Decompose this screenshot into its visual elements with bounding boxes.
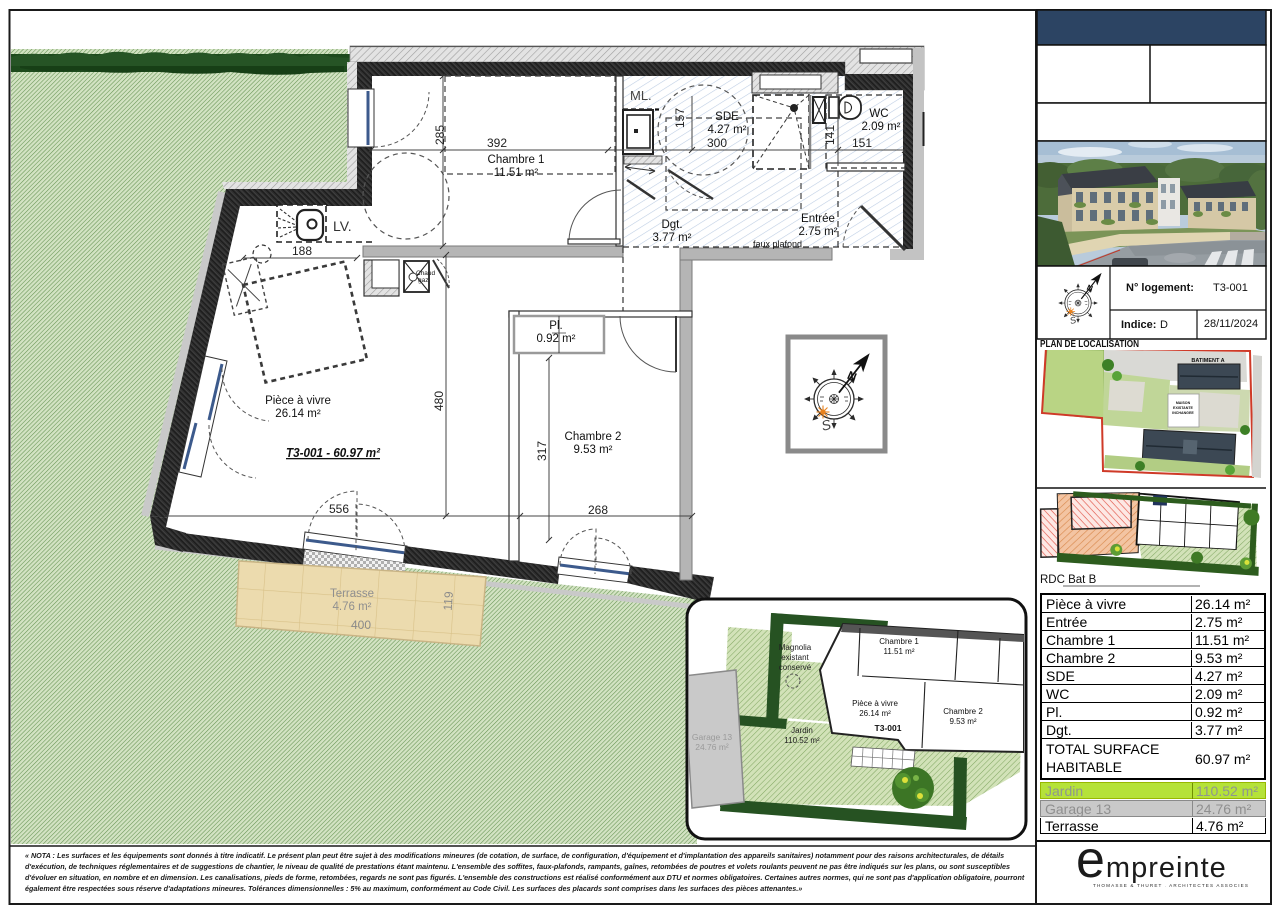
svg-text:Pièce à vivre: Pièce à vivre bbox=[852, 699, 898, 708]
svg-text:141: 141 bbox=[823, 125, 837, 145]
svg-text:110.52 m²: 110.52 m² bbox=[784, 736, 820, 745]
svg-text:268: 268 bbox=[588, 503, 608, 517]
svg-text:392: 392 bbox=[487, 136, 507, 150]
svg-text:faux plafond: faux plafond bbox=[753, 239, 802, 249]
svg-text:Chaud: Chaud bbox=[416, 270, 436, 277]
svg-text:Chambre 1: Chambre 1 bbox=[879, 637, 919, 646]
svg-text:Chambre 2: Chambre 2 bbox=[565, 431, 622, 443]
svg-text:ML.: ML. bbox=[630, 88, 652, 103]
svg-text:26.14 m²: 26.14 m² bbox=[859, 709, 891, 718]
svg-text:RDC Bat B: RDC Bat B bbox=[1040, 574, 1097, 586]
svg-text:SDE: SDE bbox=[715, 111, 739, 123]
svg-text:Pièce à vivre: Pièce à vivre bbox=[265, 395, 331, 407]
svg-text:Garage 13: Garage 13 bbox=[692, 732, 732, 742]
svg-text:11.51 m²: 11.51 m² bbox=[494, 167, 539, 179]
svg-text:MAISON: MAISON bbox=[1176, 401, 1191, 405]
svg-text:Terrasse: Terrasse bbox=[330, 588, 374, 600]
svg-text:N° logement:: N° logement: bbox=[1126, 282, 1194, 294]
svg-text:T3-001 - 60.97 m²: T3-001 - 60.97 m² bbox=[286, 445, 381, 460]
svg-text:Dgt.: Dgt. bbox=[661, 219, 682, 231]
svg-text:2.09 m²: 2.09 m² bbox=[862, 121, 901, 133]
svg-text:188: 188 bbox=[292, 244, 312, 258]
svg-text:4.27 m²: 4.27 m² bbox=[708, 124, 747, 136]
svg-text:0.92 m²: 0.92 m² bbox=[537, 333, 576, 345]
svg-text:Entrée: Entrée bbox=[801, 213, 835, 225]
svg-text:3.77 m²: 3.77 m² bbox=[653, 232, 692, 244]
svg-text:gaz: gaz bbox=[418, 277, 428, 284]
svg-text:119: 119 bbox=[441, 591, 456, 611]
svg-text:Pl.: Pl. bbox=[549, 320, 562, 332]
svg-text:Chambre 2: Chambre 2 bbox=[943, 707, 983, 716]
svg-text:LV.: LV. bbox=[333, 218, 352, 234]
svg-text:157: 157 bbox=[673, 108, 687, 128]
svg-text:WC: WC bbox=[869, 108, 888, 120]
svg-text:285: 285 bbox=[433, 125, 447, 145]
svg-text:T3-001: T3-001 bbox=[1213, 282, 1248, 294]
svg-text:9.53 m²: 9.53 m² bbox=[949, 717, 976, 726]
svg-text:Chambre 1: Chambre 1 bbox=[488, 154, 545, 166]
svg-text:EXISTANTE: EXISTANTE bbox=[1173, 406, 1194, 410]
svg-text:Indice:: Indice: bbox=[1121, 319, 1156, 331]
svg-text:400: 400 bbox=[351, 618, 371, 632]
svg-text:INCHANGEE: INCHANGEE bbox=[1172, 411, 1194, 415]
svg-text:4.76 m²: 4.76 m² bbox=[333, 601, 372, 613]
svg-text:2.75 m²: 2.75 m² bbox=[799, 226, 838, 238]
svg-text:existant: existant bbox=[781, 653, 809, 662]
svg-text:9.53 m²: 9.53 m² bbox=[574, 444, 613, 456]
svg-text:conservé: conservé bbox=[779, 663, 812, 672]
svg-text:317: 317 bbox=[535, 441, 549, 461]
svg-text:PLAN DE LOCALISATION: PLAN DE LOCALISATION bbox=[1040, 338, 1139, 350]
svg-text:556: 556 bbox=[329, 502, 349, 516]
svg-text:T3-001: T3-001 bbox=[875, 723, 902, 733]
svg-text:24.76 m²: 24.76 m² bbox=[695, 742, 729, 752]
svg-text:11.51 m²: 11.51 m² bbox=[884, 647, 915, 656]
svg-text:151: 151 bbox=[852, 136, 872, 150]
svg-text:D: D bbox=[1160, 319, 1168, 331]
svg-text:BATIMENT A: BATIMENT A bbox=[1191, 358, 1224, 364]
svg-text:Jardin: Jardin bbox=[791, 726, 813, 735]
svg-text:Magnolia: Magnolia bbox=[779, 643, 812, 652]
svg-text:480: 480 bbox=[432, 391, 446, 411]
svg-text:300: 300 bbox=[707, 136, 727, 150]
svg-text:26.14 m²: 26.14 m² bbox=[275, 408, 321, 420]
svg-text:28/11/2024: 28/11/2024 bbox=[1204, 318, 1258, 330]
